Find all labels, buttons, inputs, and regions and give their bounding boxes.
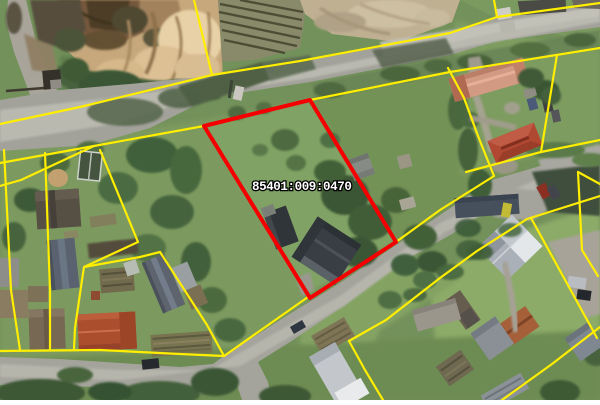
svg-text:85401:009:0470: 85401:009:0470: [252, 180, 351, 194]
